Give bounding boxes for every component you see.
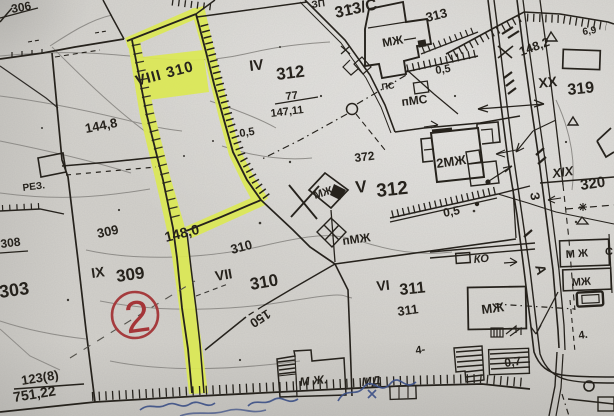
svg-text:МЖ: МЖ	[481, 299, 505, 317]
svg-text:XX: XX	[538, 73, 559, 91]
svg-text:312: 312	[275, 62, 305, 84]
svg-text:319: 319	[567, 79, 595, 99]
svg-text:0,7: 0,7	[503, 354, 522, 370]
svg-text:VII: VII	[214, 265, 234, 284]
svg-text:0,5: 0,5	[239, 126, 256, 140]
svg-text:КО: КО	[473, 253, 490, 266]
svg-text:320: 320	[579, 174, 606, 194]
svg-text:372: 372	[354, 149, 376, 165]
svg-text:ЗП: ЗП	[311, 0, 326, 11]
svg-text:308: 308	[0, 235, 22, 251]
svg-text:С: С	[605, 246, 613, 258]
svg-text:6,9: 6,9	[582, 25, 598, 38]
svg-text:309: 309	[115, 263, 146, 286]
svg-text:4-: 4-	[415, 344, 427, 357]
svg-text:М Ж: М Ж	[565, 247, 588, 261]
svg-text:312: 312	[375, 178, 409, 202]
svg-text:МЖ: МЖ	[571, 276, 591, 289]
svg-text:77: 77	[285, 90, 299, 103]
svg-text:311: 311	[399, 279, 427, 299]
svg-text:303: 303	[0, 278, 30, 302]
svg-text:ПС: ПС	[381, 80, 396, 92]
svg-text:VI: VI	[376, 277, 391, 294]
svg-text:4.: 4.	[578, 329, 589, 342]
svg-text:М Ж.: М Ж.	[299, 372, 328, 389]
svg-text:XIX: XIX	[550, 163, 575, 181]
svg-text:IV: IV	[248, 56, 264, 75]
svg-text:311: 311	[396, 301, 419, 319]
svg-text:0,5: 0,5	[435, 63, 452, 77]
